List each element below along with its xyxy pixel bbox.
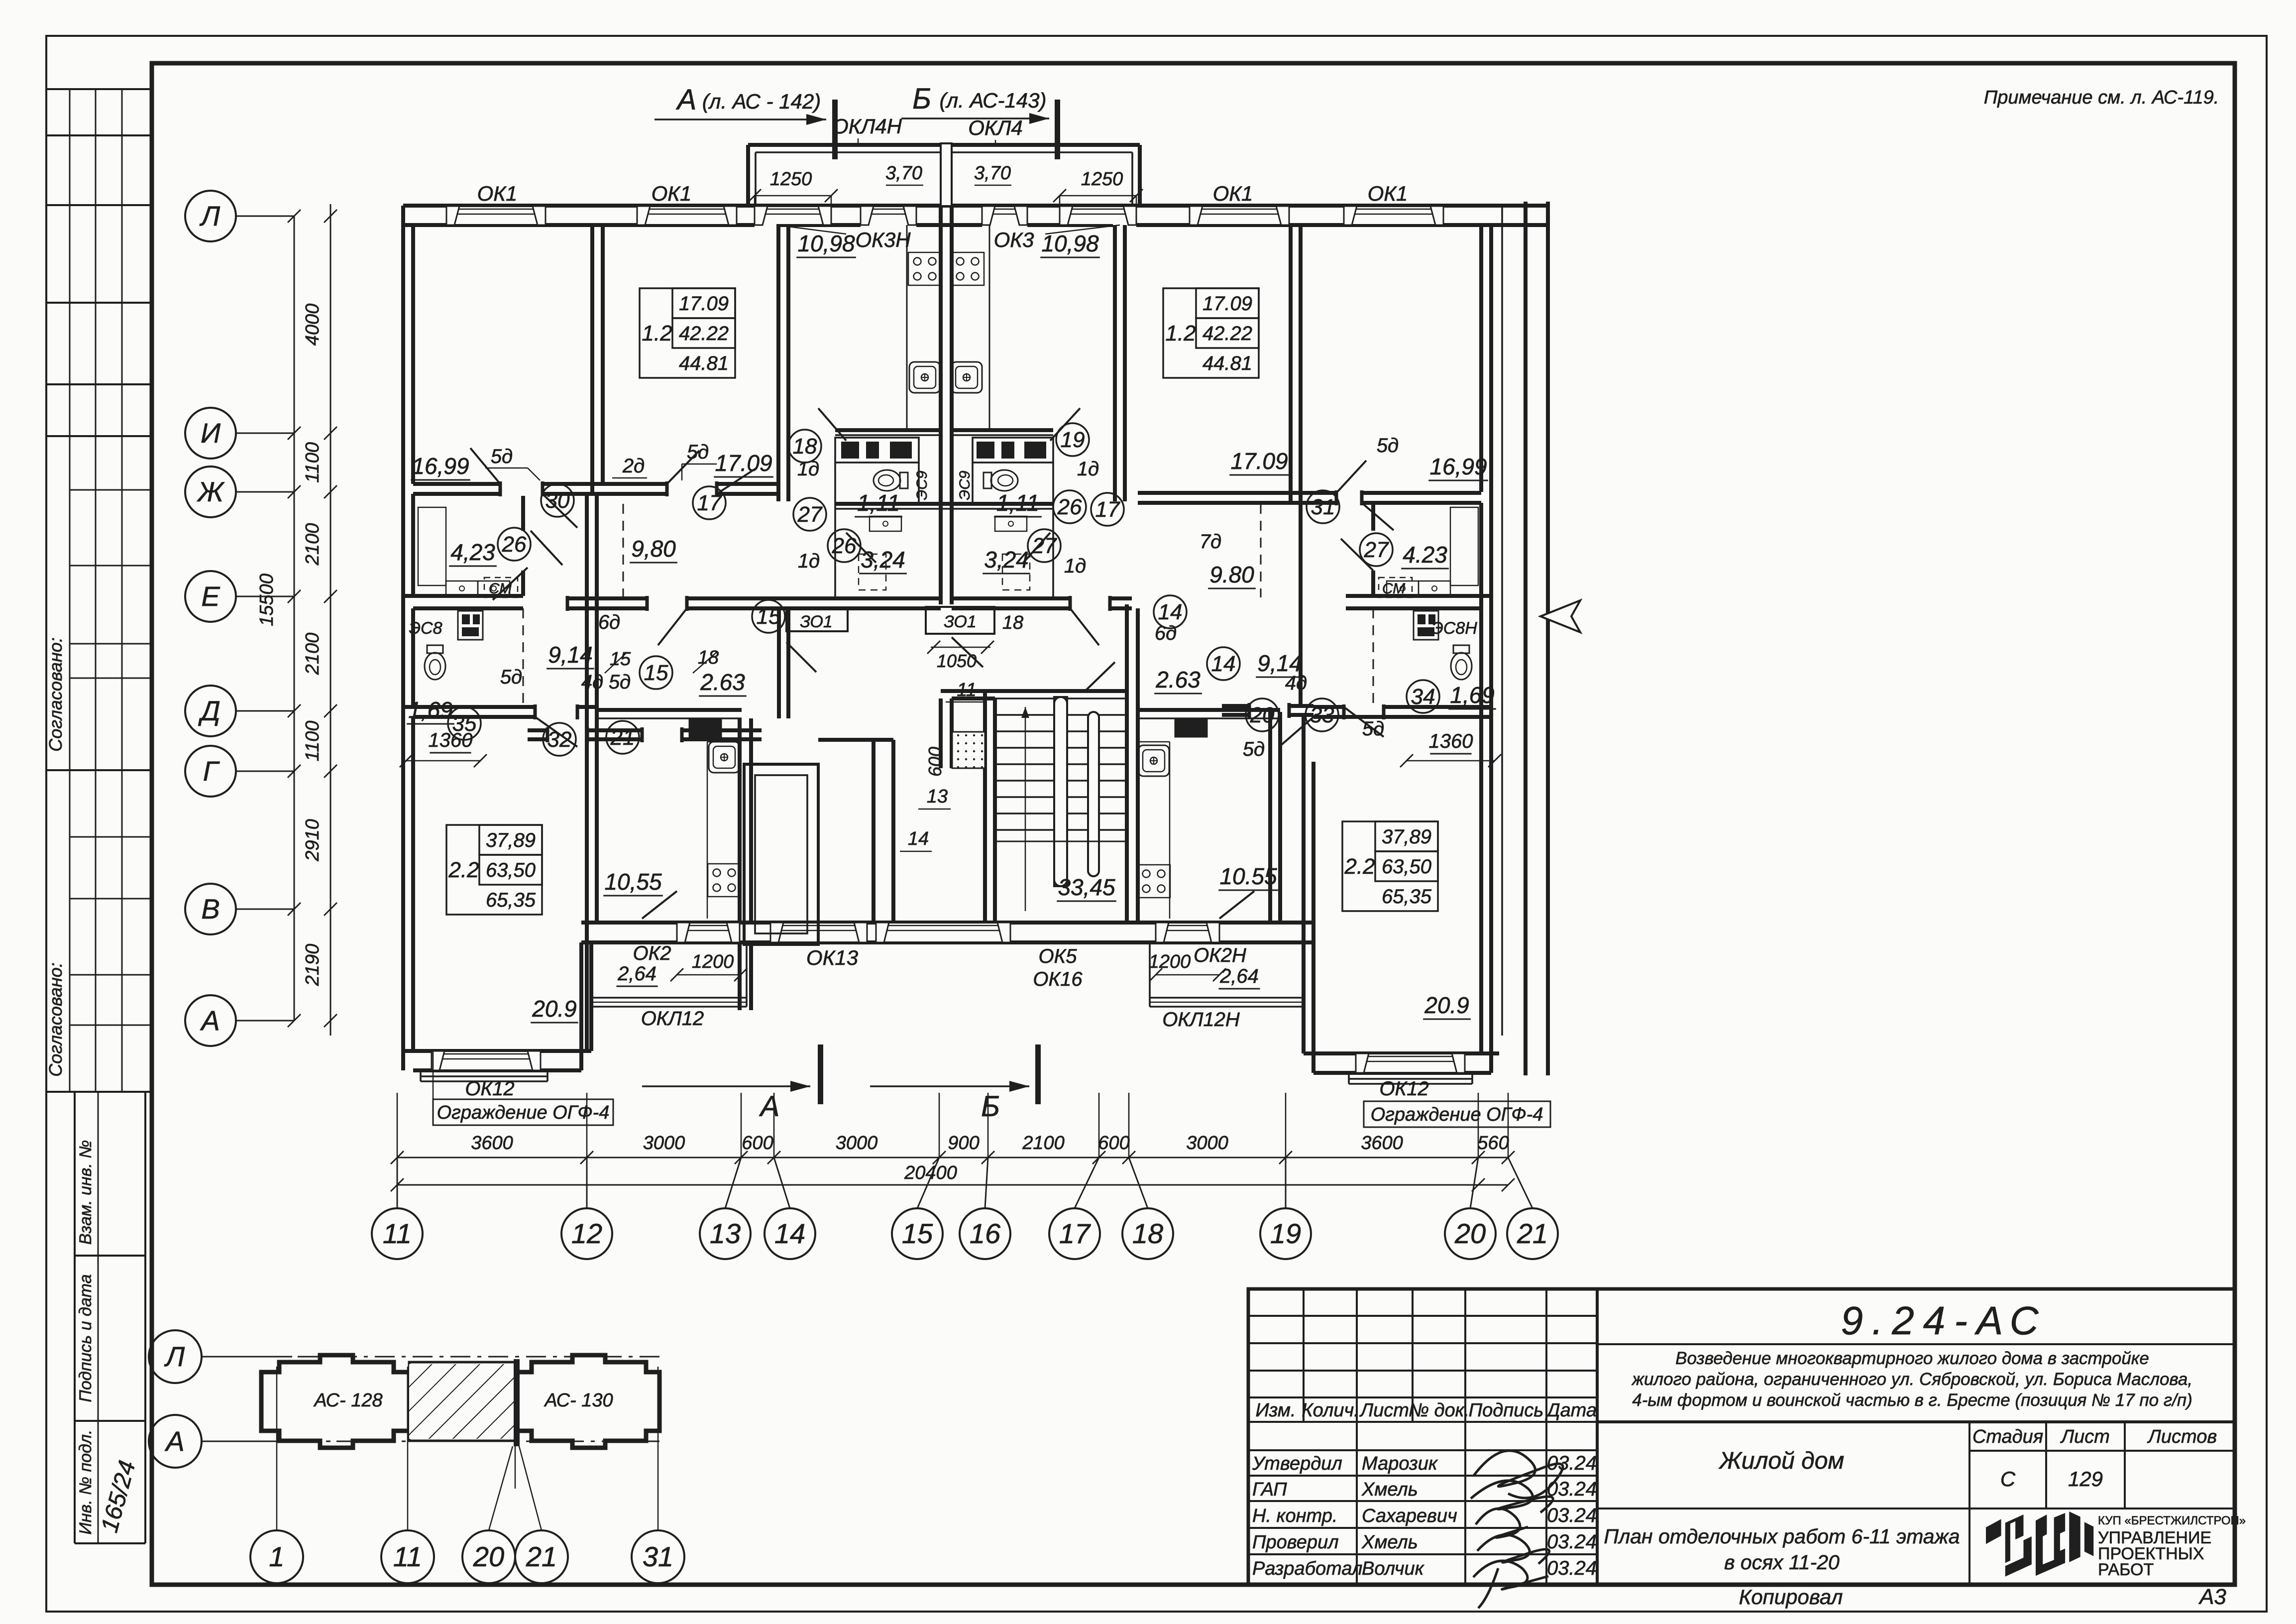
svg-text:3,70: 3,70 xyxy=(974,163,1011,184)
svg-text:КУП «БРЕСТЖИЛСТРОЙ»: КУП «БРЕСТЖИЛСТРОЙ» xyxy=(2098,1513,2246,1527)
svg-text:ОК1: ОК1 xyxy=(652,182,692,205)
svg-text:А: А xyxy=(200,1005,219,1036)
svg-text:ОК1: ОК1 xyxy=(1213,182,1253,205)
svg-text:1.2: 1.2 xyxy=(1165,321,1196,346)
svg-text:20.9: 20.9 xyxy=(1424,992,1469,1018)
svg-text:600: 600 xyxy=(1098,1133,1129,1154)
svg-text:21: 21 xyxy=(526,1541,557,1572)
svg-text:ОКЛ4Н: ОКЛ4Н xyxy=(832,115,902,138)
svg-text:4,23: 4,23 xyxy=(450,539,495,565)
svg-text:14: 14 xyxy=(774,1218,805,1249)
svg-text:Б: Б xyxy=(981,1090,1000,1123)
svg-text:17: 17 xyxy=(1059,1218,1091,1249)
svg-text:ОК2: ОК2 xyxy=(633,942,671,964)
svg-text:4000: 4000 xyxy=(302,304,323,346)
svg-text:5д: 5д xyxy=(500,666,522,688)
svg-text:03.24: 03.24 xyxy=(1547,1531,1597,1553)
svg-text:5д: 5д xyxy=(687,441,709,463)
svg-text:42.22: 42.22 xyxy=(679,323,729,345)
svg-text:17.09: 17.09 xyxy=(1230,448,1288,474)
svg-text:1: 1 xyxy=(269,1541,284,1572)
svg-text:1.2: 1.2 xyxy=(642,321,672,346)
svg-text:ЭС8Н: ЭС8Н xyxy=(1431,619,1477,638)
svg-text:5д: 5д xyxy=(609,671,631,693)
svg-text:в осях 11-20: в осях 11-20 xyxy=(1724,1551,1840,1574)
svg-text:2100: 2100 xyxy=(302,633,323,676)
svg-text:Дата: Дата xyxy=(1545,1400,1597,1421)
svg-text:Г: Г xyxy=(203,755,220,787)
svg-text:Согласовано:: Согласовано: xyxy=(45,637,66,752)
svg-text:2,64: 2,64 xyxy=(1219,965,1259,987)
svg-text:Лист: Лист xyxy=(1359,1400,1409,1421)
svg-text:И: И xyxy=(201,417,221,449)
svg-text:Возведение многоквартирного жи: Возведение многоквартирного жилого дома … xyxy=(1675,1349,2149,1368)
svg-text:2.63: 2.63 xyxy=(700,669,745,695)
svg-text:19: 19 xyxy=(1270,1218,1301,1249)
svg-text:9.80: 9.80 xyxy=(1209,562,1254,587)
svg-text:37,89: 37,89 xyxy=(1382,826,1431,848)
svg-text:Подпись и дата: Подпись и дата xyxy=(76,1274,95,1402)
svg-text:1д: 1д xyxy=(1077,458,1099,480)
svg-text:Ограждение ОГФ-4: Ограждение ОГФ-4 xyxy=(1371,1104,1543,1125)
svg-text:1050: 1050 xyxy=(937,651,977,671)
svg-text:Изм.: Изм. xyxy=(1255,1400,1296,1421)
svg-text:ГАП: ГАП xyxy=(1252,1479,1287,1500)
svg-text:42.22: 42.22 xyxy=(1203,323,1252,345)
svg-text:6д: 6д xyxy=(1155,622,1177,644)
svg-text:Хмель: Хмель xyxy=(1361,1532,1418,1553)
svg-text:АС- 128: АС- 128 xyxy=(313,1390,382,1411)
svg-text:26: 26 xyxy=(502,532,527,557)
svg-text:1360: 1360 xyxy=(429,729,473,751)
svg-text:А: А xyxy=(164,1425,184,1457)
svg-text:65,35: 65,35 xyxy=(486,889,536,911)
svg-text:ЗО1: ЗО1 xyxy=(944,612,976,631)
svg-text:Л: Л xyxy=(200,200,220,232)
svg-text:27: 27 xyxy=(1364,538,1389,562)
svg-text:19: 19 xyxy=(1061,428,1085,452)
svg-text:ОК1: ОК1 xyxy=(1368,182,1408,205)
svg-text:ОКЛ12: ОКЛ12 xyxy=(641,1008,704,1030)
svg-text:37,89: 37,89 xyxy=(486,829,536,851)
svg-text:26: 26 xyxy=(1057,495,1082,519)
svg-text:1д: 1д xyxy=(798,550,820,572)
svg-text:Сахаревич: Сахаревич xyxy=(1362,1506,1457,1526)
svg-text:15: 15 xyxy=(644,661,668,685)
svg-text:3600: 3600 xyxy=(471,1133,513,1154)
svg-text:10.55: 10.55 xyxy=(1219,863,1277,889)
svg-text:600: 600 xyxy=(925,747,945,777)
svg-text:14: 14 xyxy=(1158,600,1183,624)
svg-text:27: 27 xyxy=(797,502,823,527)
svg-text:ОК1: ОК1 xyxy=(477,182,518,205)
svg-text:Б: Б xyxy=(912,83,931,115)
svg-text:16,99: 16,99 xyxy=(412,453,469,479)
svg-text:Н. контр.: Н. контр. xyxy=(1252,1506,1337,1526)
svg-text:5д: 5д xyxy=(1362,718,1384,740)
svg-text:33: 33 xyxy=(1310,703,1334,727)
svg-text:65,35: 65,35 xyxy=(1382,886,1432,908)
svg-text:44.81: 44.81 xyxy=(1203,352,1252,374)
svg-text:1д: 1д xyxy=(1064,555,1086,577)
svg-text:18: 18 xyxy=(1132,1218,1163,1249)
svg-text:17.09: 17.09 xyxy=(679,293,729,315)
svg-text:АС- 130: АС- 130 xyxy=(544,1390,613,1411)
svg-text:9,80: 9,80 xyxy=(631,536,676,562)
svg-text:6д: 6д xyxy=(598,611,620,633)
svg-text:ОК3: ОК3 xyxy=(994,228,1034,251)
svg-text:2.2: 2.2 xyxy=(448,858,479,882)
svg-text:3,70: 3,70 xyxy=(885,163,922,184)
svg-text:ЭС9: ЭС9 xyxy=(914,470,930,500)
svg-text:Примечание см. л. АС-119.: Примечание см. л. АС-119. xyxy=(1984,87,2219,108)
svg-text:4.23: 4.23 xyxy=(1403,542,1447,568)
svg-text:31: 31 xyxy=(643,1541,673,1572)
svg-text:15500: 15500 xyxy=(256,574,277,626)
svg-text:17: 17 xyxy=(697,491,722,515)
svg-text:18: 18 xyxy=(698,647,719,668)
svg-text:2190: 2190 xyxy=(302,944,323,987)
svg-text:РАБОТ: РАБОТ xyxy=(2098,1560,2154,1579)
svg-text:Подпись: Подпись xyxy=(1469,1400,1544,1421)
svg-text:Ж: Ж xyxy=(196,476,225,507)
svg-text:№ док.: № док. xyxy=(1409,1400,1469,1421)
svg-text:5д: 5д xyxy=(1377,435,1399,457)
svg-text:Лист: Лист xyxy=(2060,1426,2110,1447)
svg-text:ЭС9: ЭС9 xyxy=(957,470,973,500)
svg-text:21: 21 xyxy=(1517,1218,1548,1249)
svg-text:20.9: 20.9 xyxy=(532,996,577,1022)
svg-text:Стадия: Стадия xyxy=(1972,1426,2043,1447)
svg-text:2100: 2100 xyxy=(1022,1133,1065,1154)
svg-text:12: 12 xyxy=(571,1218,602,1249)
svg-text:Ограждение ОГФ-4: Ограждение ОГФ-4 xyxy=(437,1102,610,1123)
svg-text:9.24-АС: 9.24-АС xyxy=(1841,1298,2048,1343)
svg-text:Е: Е xyxy=(201,580,220,612)
svg-text:21: 21 xyxy=(610,725,635,750)
svg-text:1100: 1100 xyxy=(302,721,323,762)
svg-text:2д: 2д xyxy=(622,455,645,477)
svg-text:16,99: 16,99 xyxy=(1429,454,1487,479)
svg-text:ОК5: ОК5 xyxy=(1039,945,1078,967)
svg-text:17.09: 17.09 xyxy=(715,450,772,476)
svg-text:34: 34 xyxy=(1411,685,1435,709)
svg-text:Листов: Листов xyxy=(2147,1426,2217,1447)
svg-text:15: 15 xyxy=(902,1218,933,1249)
svg-text:2,64: 2,64 xyxy=(617,963,656,985)
svg-text:4д: 4д xyxy=(1285,672,1307,694)
svg-text:ЭС8: ЭС8 xyxy=(409,619,442,638)
svg-text:63,50: 63,50 xyxy=(486,859,536,881)
svg-text:Утвердил: Утвердил xyxy=(1252,1453,1342,1474)
svg-text:3,24: 3,24 xyxy=(984,547,1029,573)
svg-text:9,14: 9,14 xyxy=(548,642,593,668)
svg-text:5д: 5д xyxy=(491,446,513,467)
svg-text:17.09: 17.09 xyxy=(1203,293,1252,315)
svg-text:03.24: 03.24 xyxy=(1547,1557,1597,1579)
svg-text:1,11: 1,11 xyxy=(996,490,1039,516)
svg-text:30: 30 xyxy=(546,488,570,513)
svg-text:ОК13: ОК13 xyxy=(806,946,858,969)
svg-text:Копировал: Копировал xyxy=(1739,1585,1843,1609)
svg-text:18: 18 xyxy=(793,434,817,459)
svg-text:03.24: 03.24 xyxy=(1547,1505,1597,1526)
svg-text:20: 20 xyxy=(1250,703,1275,727)
svg-text:4д: 4д xyxy=(581,671,603,693)
svg-text:3000: 3000 xyxy=(643,1133,685,1154)
svg-text:32: 32 xyxy=(547,727,572,752)
svg-text:3000: 3000 xyxy=(836,1133,878,1154)
svg-text:1,69: 1,69 xyxy=(408,697,453,723)
svg-text:2.2: 2.2 xyxy=(1344,854,1375,879)
svg-text:1,11: 1,11 xyxy=(857,490,900,516)
svg-text:ОКЛ12Н: ОКЛ12Н xyxy=(1162,1009,1240,1031)
svg-text:2100: 2100 xyxy=(302,523,323,566)
svg-text:2910: 2910 xyxy=(302,819,323,862)
svg-text:4-ым фортом и воинской частью: 4-ым фортом и воинской частью в г. Брест… xyxy=(1632,1391,2192,1410)
svg-text:ОК16: ОК16 xyxy=(1033,968,1083,990)
svg-text:1250: 1250 xyxy=(770,169,812,190)
svg-text:31: 31 xyxy=(1311,495,1335,519)
svg-text:ОК3Н: ОК3Н xyxy=(855,228,911,251)
svg-text:А: А xyxy=(759,1090,780,1123)
svg-text:1100: 1100 xyxy=(302,442,323,483)
svg-text:1200: 1200 xyxy=(692,951,734,972)
svg-text:1360: 1360 xyxy=(1429,730,1473,752)
svg-text:14: 14 xyxy=(908,828,929,849)
svg-text:Марозик: Марозик xyxy=(1362,1453,1438,1474)
svg-text:16: 16 xyxy=(970,1218,1001,1249)
svg-text:3600: 3600 xyxy=(1361,1133,1403,1154)
svg-text:(л. АС-143): (л. АС-143) xyxy=(939,89,1046,112)
svg-text:1200: 1200 xyxy=(1149,951,1191,972)
svg-text:900: 900 xyxy=(948,1133,979,1154)
svg-text:Колич.: Колич. xyxy=(1302,1400,1359,1421)
svg-text:3,24: 3,24 xyxy=(861,547,905,573)
svg-text:А3: А3 xyxy=(2198,1585,2226,1609)
svg-text:Хмель: Хмель xyxy=(1361,1479,1418,1500)
svg-text:7д: 7д xyxy=(1200,531,1221,553)
svg-text:ОК12: ОК12 xyxy=(1379,1078,1428,1100)
svg-text:СМ: СМ xyxy=(1382,580,1405,597)
svg-text:560: 560 xyxy=(1477,1133,1509,1154)
svg-text:15: 15 xyxy=(757,604,781,629)
svg-text:(л. АС - 142): (л. АС - 142) xyxy=(702,90,821,113)
svg-text:План отделочных работ 6-11 эта: План отделочных работ 6-11 этажа xyxy=(1604,1525,1960,1548)
svg-text:Разработал: Разработал xyxy=(1252,1558,1362,1579)
svg-text:11: 11 xyxy=(957,680,976,700)
svg-text:11: 11 xyxy=(383,1218,412,1249)
svg-text:13: 13 xyxy=(710,1218,741,1249)
svg-text:14: 14 xyxy=(1211,652,1236,676)
svg-text:ЗО1: ЗО1 xyxy=(800,612,832,631)
svg-text:11: 11 xyxy=(393,1541,422,1572)
svg-text:13: 13 xyxy=(927,786,948,807)
svg-text:17: 17 xyxy=(1095,497,1120,522)
svg-text:ОКЛ4: ОКЛ4 xyxy=(968,116,1023,139)
svg-text:5д: 5д xyxy=(1243,738,1265,760)
svg-text:ОК12: ОК12 xyxy=(465,1078,514,1100)
svg-text:27: 27 xyxy=(1032,534,1057,558)
svg-text:10,55: 10,55 xyxy=(604,869,662,895)
svg-text:18: 18 xyxy=(1002,612,1023,633)
svg-text:1250: 1250 xyxy=(1081,169,1123,190)
svg-text:3000: 3000 xyxy=(1186,1133,1228,1154)
svg-text:20: 20 xyxy=(1454,1218,1486,1249)
svg-text:44.81: 44.81 xyxy=(679,352,729,374)
svg-text:Согласовано:: Согласовано: xyxy=(45,962,66,1077)
svg-text:33,45: 33,45 xyxy=(1058,874,1115,900)
svg-text:Жилой дом: Жилой дом xyxy=(1719,1448,1845,1474)
svg-text:Д: Д xyxy=(198,695,220,726)
svg-text:10,98: 10,98 xyxy=(797,231,855,256)
svg-text:СМ: СМ xyxy=(489,580,512,597)
svg-text:129: 129 xyxy=(2068,1467,2103,1491)
svg-text:В: В xyxy=(201,893,219,925)
svg-text:Инв. № подл.: Инв. № подл. xyxy=(76,1430,95,1535)
svg-text:2.63: 2.63 xyxy=(1155,667,1201,693)
svg-text:26: 26 xyxy=(832,534,857,558)
svg-text:А: А xyxy=(676,84,697,116)
svg-text:Проверил: Проверил xyxy=(1252,1532,1339,1553)
svg-text:1,69: 1,69 xyxy=(1450,682,1495,708)
svg-text:20: 20 xyxy=(473,1541,504,1572)
svg-text:жилого района, ограниченного у: жилого района, ограниченного ул. Сябровс… xyxy=(1631,1370,2192,1389)
svg-text:63,50: 63,50 xyxy=(1382,856,1431,878)
svg-text:С: С xyxy=(2000,1467,2016,1491)
svg-text:Волчик: Волчик xyxy=(1362,1558,1425,1579)
svg-text:600: 600 xyxy=(742,1133,773,1154)
svg-text:Л: Л xyxy=(164,1341,185,1372)
svg-text:Взам. инв. №: Взам. инв. № xyxy=(76,1140,95,1245)
svg-text:ОК2Н: ОК2Н xyxy=(1194,944,1246,966)
svg-text:20400: 20400 xyxy=(904,1162,957,1183)
svg-text:10,98: 10,98 xyxy=(1041,231,1099,256)
